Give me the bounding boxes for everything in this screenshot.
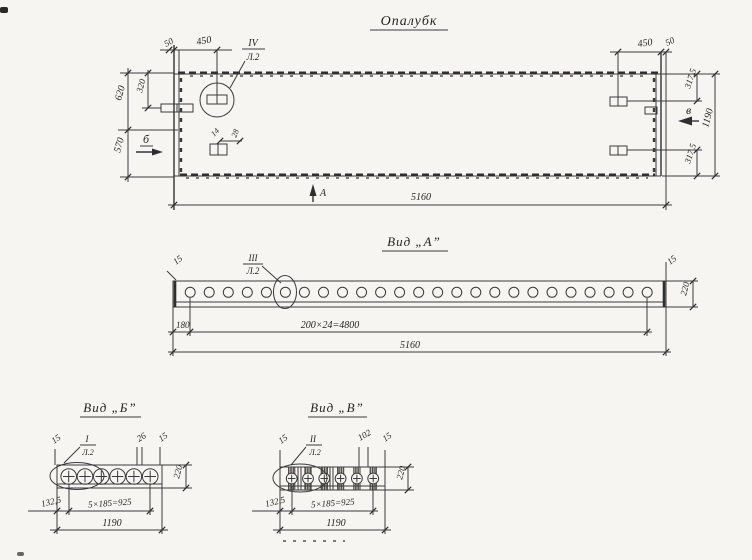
view-a-dim-220: 220 xyxy=(678,280,691,296)
view-v-dim-15-right: 15 xyxy=(380,430,394,444)
hole xyxy=(223,287,233,297)
callout-i-num: I xyxy=(85,434,90,444)
view-a-dim-15-left: 15 xyxy=(171,253,185,267)
marker-b-label: б xyxy=(143,132,150,146)
formwork-drawing: Опалубк IV Л.2 14 xyxy=(0,0,752,560)
callout-ii-sheet: Л.2 xyxy=(308,448,320,457)
view-a-dim-15-right: 15 xyxy=(665,253,679,267)
blueprint-sheet: Опалубк IV Л.2 14 xyxy=(0,0,752,560)
view-v-strips xyxy=(289,467,377,490)
callout-ii-num: II xyxy=(309,434,317,444)
hole xyxy=(414,287,424,297)
dim-14: 14 xyxy=(209,126,221,138)
plan-title: Опалубк xyxy=(381,14,438,29)
view-a-title: Вид „А” xyxy=(387,234,441,249)
dim-line xyxy=(64,447,80,463)
dim-1190-plan: 1190 xyxy=(700,107,716,128)
hole xyxy=(547,287,557,297)
hole xyxy=(433,287,443,297)
hole xyxy=(490,287,500,297)
plan-view: Опалубк IV Л.2 14 xyxy=(112,14,716,210)
marker-v-arrow-head xyxy=(678,117,692,126)
dimension-ticks xyxy=(54,47,718,533)
hole xyxy=(338,287,348,297)
view-a-callout-ellipse xyxy=(274,276,297,309)
view-v-dim-total: 1190 xyxy=(326,518,345,529)
dim-620: 620 xyxy=(113,84,128,101)
dim-50-right: 50 xyxy=(664,35,677,48)
view-b-dim-15-right: 15 xyxy=(156,430,170,444)
dim-450-right: 450 xyxy=(637,37,653,50)
callout-iii-sheet: Л.2 xyxy=(246,266,260,276)
view-b-dim-26: 26 xyxy=(135,430,148,444)
dim-3175-bot: 317,5 xyxy=(682,142,698,166)
hole xyxy=(509,287,519,297)
hole xyxy=(261,287,271,297)
dim-line xyxy=(262,266,281,283)
view-b-dim-220: 220 xyxy=(171,463,184,479)
view-a-dim-spacing: 200×24=4800 xyxy=(301,320,360,331)
view-v-dim-spacing: 5×185=925 xyxy=(311,496,356,509)
view-a-dim-total: 5160 xyxy=(400,340,420,351)
hole xyxy=(642,287,652,297)
view-b-dim-1325: 132,5 xyxy=(40,494,63,509)
dim-3175-top: 317,5 xyxy=(682,67,698,91)
view-v-title: Вид „В” xyxy=(310,400,364,415)
view-v-dim-15-left: 15 xyxy=(276,432,290,446)
hole xyxy=(471,287,481,297)
marker-a-label: А xyxy=(319,188,327,199)
dim-28: 28 xyxy=(230,128,241,139)
hole xyxy=(623,287,633,297)
view-a-dim-180: 180 xyxy=(176,320,190,330)
hole xyxy=(395,287,405,297)
hole xyxy=(585,287,595,297)
hole xyxy=(452,287,462,297)
hole xyxy=(357,287,367,297)
view-b-dim-spacing: 5×185=925 xyxy=(88,496,133,509)
dim-450-left: 450 xyxy=(196,35,213,48)
callout-iv-num: IV xyxy=(247,38,259,49)
hole xyxy=(604,287,614,297)
hole xyxy=(376,287,386,297)
dim-5160-plan: 5160 xyxy=(411,192,431,203)
callout-iii-num: III xyxy=(248,253,259,263)
hole xyxy=(566,287,576,297)
view-v-dim-1325: 132,5 xyxy=(264,494,287,509)
view-a-bar xyxy=(173,281,666,307)
view-a: Вид „А” III Л.2 15 15 180 200×24=4800 51… xyxy=(171,234,691,351)
marker-v-label: в xyxy=(686,103,691,117)
view-v-dim-102: 102 xyxy=(356,427,373,443)
callout-i-sheet: Л.2 xyxy=(81,448,93,457)
view-a-holes xyxy=(185,287,652,297)
view-v-holes xyxy=(286,473,378,484)
dim-line xyxy=(167,271,176,280)
view-b-dim-total: 1190 xyxy=(102,518,121,529)
scan-speck xyxy=(17,552,24,556)
view-b-title: Вид „Б” xyxy=(83,400,136,415)
hole xyxy=(280,287,290,297)
marker-b-arrow-head xyxy=(152,149,163,156)
hole xyxy=(242,287,252,297)
callout-iv-sheet: Л.2 xyxy=(246,52,260,62)
hole xyxy=(319,287,329,297)
dim-570: 570 xyxy=(112,136,127,153)
hole xyxy=(299,287,309,297)
marker-a-arrow-head xyxy=(310,184,317,196)
hole xyxy=(185,287,195,297)
dimension-lines xyxy=(28,50,720,534)
hole xyxy=(528,287,538,297)
view-b-holes xyxy=(61,469,158,485)
view-b-dim-15-left: 15 xyxy=(49,432,63,446)
hole xyxy=(204,287,214,297)
dim-line xyxy=(291,447,306,465)
scan-speck xyxy=(0,7,8,13)
dim-320: 320 xyxy=(134,77,148,94)
view-v: Вид „В” II Л.2 15 102 15 132,5 5×185=925… xyxy=(264,400,407,541)
